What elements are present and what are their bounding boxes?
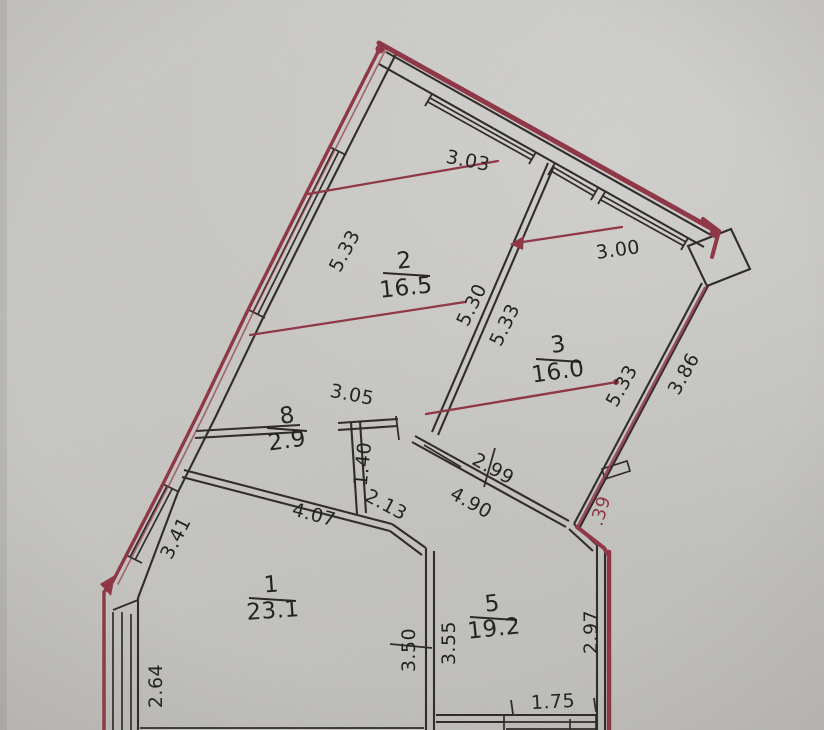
floor-plan-drawing: 1 23.1 2 16.5 3 16.0 5 19.2 8 2.9 3.03 3… — [0, 0, 824, 730]
floor-plan-scan: 1 23.1 2 16.5 3 16.0 5 19.2 8 2.9 3.03 3… — [0, 0, 824, 730]
photo-vignette — [0, 0, 824, 730]
